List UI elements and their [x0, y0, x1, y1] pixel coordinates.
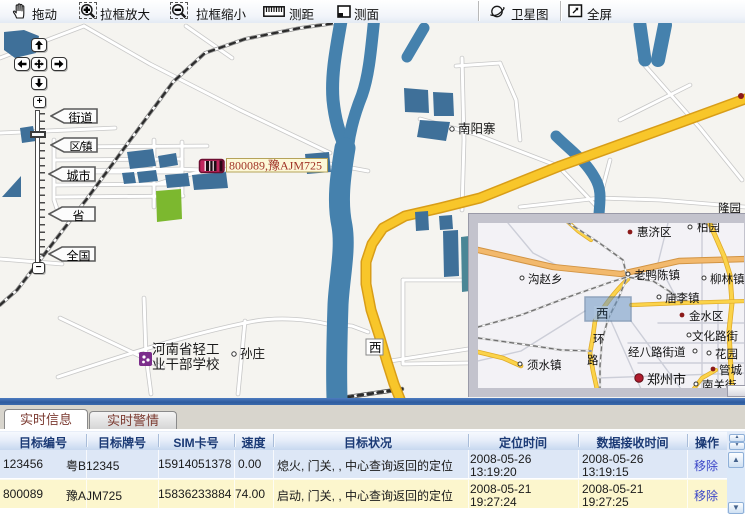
svg-text:孙庄: 孙庄	[240, 346, 265, 361]
svg-text:河南省轻工: 河南省轻工	[152, 342, 220, 357]
svg-text:管城: 管城	[719, 363, 742, 377]
svg-text:花园: 花园	[715, 348, 738, 361]
svg-text:须水镇: 须水镇	[527, 358, 562, 372]
svg-text:郑州市: 郑州市	[647, 372, 686, 387]
svg-text:环: 环	[593, 334, 605, 346]
svg-text:金水区: 金水区	[689, 309, 724, 323]
svg-text:业干部学校: 业干部学校	[152, 356, 220, 372]
svg-text:经八路街道: 经八路街道	[628, 345, 686, 359]
svg-text:文化路街: 文化路街	[692, 329, 738, 343]
svg-text:西: 西	[369, 341, 382, 355]
svg-text:惠济区: 惠济区	[637, 225, 672, 239]
svg-text:柏园: 柏园	[697, 223, 720, 234]
svg-text:沟赵乡: 沟赵乡	[528, 272, 563, 286]
svg-text:路: 路	[587, 353, 599, 367]
svg-text:南阳寨: 南阳寨	[458, 121, 496, 136]
svg-text:西: 西	[596, 307, 609, 321]
svg-text:柳林镇: 柳林镇	[710, 272, 744, 286]
svg-text:800089,豫AJM725: 800089,豫AJM725	[229, 159, 322, 173]
svg-text:庙李镇: 庙李镇	[665, 291, 700, 305]
svg-text:老鸭陈镇: 老鸭陈镇	[634, 268, 680, 282]
